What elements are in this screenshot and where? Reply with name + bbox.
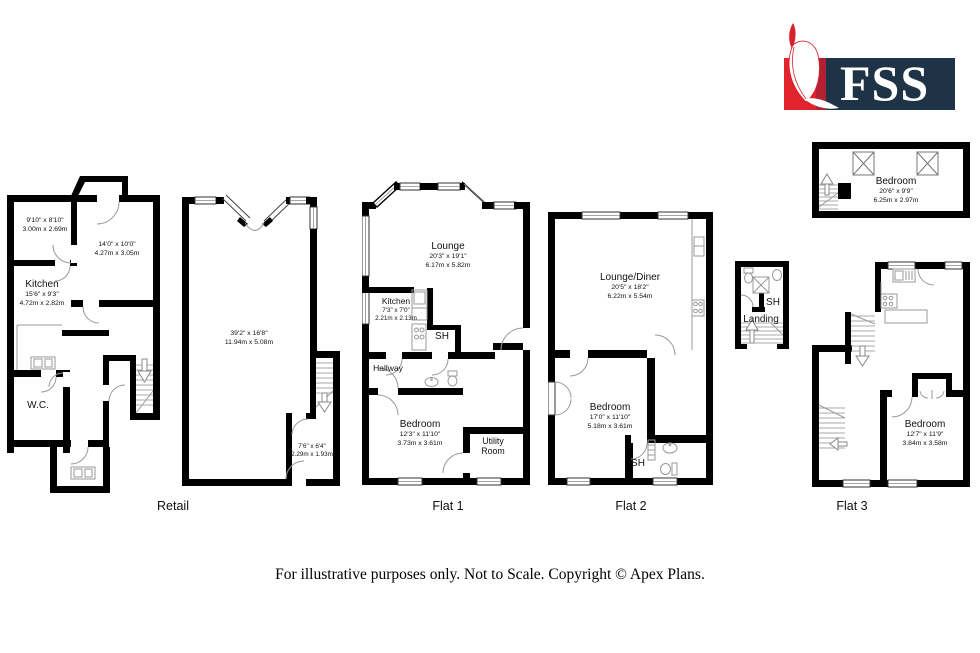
room-label-retail-main: 39'2" x 16'8" 11.94m x 5.08m: [225, 330, 273, 348]
chimney-block: [838, 183, 851, 199]
stairs-up-arrow-icon: [821, 174, 833, 195]
floorplan-ground-rear: 9'10" x 8'10" 3.00m x 2.69m 14'0" x 10'0…: [5, 175, 167, 500]
room-name: SH: [435, 330, 449, 343]
room-name: Lounge: [426, 240, 471, 253]
room-label-bedroom: Bedroom 12'3" x 11'10" 3.73m x 3.61m: [398, 418, 443, 449]
room-name: Lounge/Diner: [600, 271, 660, 284]
room-label-top-right: 14'0" x 10'0" 4.27m x 3.05m: [95, 241, 140, 259]
room-dims-m: 4.72m x 2.82m: [20, 300, 65, 309]
floorplan-page: { "logo": { "brand": "FSS" }, "footer": …: [0, 0, 980, 653]
logo-text: FSS: [840, 55, 929, 111]
toilet-icon: [661, 463, 678, 475]
wardrobe-rail-icon: [920, 390, 944, 399]
kitchen-units: [692, 219, 704, 350]
room-label-sh: SH: [631, 457, 645, 470]
stairs-down-arrow-icon: [856, 346, 869, 366]
shower-icon: [753, 277, 769, 293]
unit-label-flat2: Flat 2: [615, 499, 646, 513]
room-name: Kitchen: [375, 296, 417, 307]
room-label-attic-bedroom: Bedroom 20'6" x 9'9" 6.25m x 2.97m: [874, 175, 919, 206]
room-label-sh: SH: [435, 330, 449, 343]
stairs-icon: [851, 314, 875, 351]
disclaimer-text: For illustrative purposes only. Not to S…: [0, 566, 980, 584]
room-dims-ft: 17'0" x 11'10": [588, 414, 633, 423]
room-dims-m: 3.84m x 3.58m: [903, 440, 948, 449]
toilet-icon: [448, 371, 457, 386]
room-label-lounge: Lounge 20'3" x 19'1" 6.17m x 5.82m: [426, 240, 471, 271]
room-name: Bedroom: [903, 418, 948, 431]
sink-icon: [773, 270, 782, 281]
room-dims-m: 6.22m x 5.54m: [600, 293, 660, 302]
room-dims-m: 6.17m x 5.82m: [426, 262, 471, 271]
room-dims-m: 2.29m x 1.93m: [291, 451, 333, 459]
floorplan-landing-drawing: [731, 259, 793, 354]
floorplan-flat2: Lounge/Diner 20'5" x 18'2" 6.22m x 5.54m…: [548, 208, 713, 500]
room-dims-m: 3.73m x 3.61m: [398, 440, 443, 449]
room-label-sh: SH: [766, 296, 780, 309]
room-dims-m: 2.21m x 2.13m: [375, 315, 417, 323]
room-name: W.C.: [27, 399, 49, 412]
room-label-landing: Landing: [743, 313, 779, 326]
room-label-kitchen: Kitchen 15'6" x 9'3" 4.72m x 2.82m: [20, 278, 65, 309]
room-name: Utility Room: [470, 436, 516, 456]
room-label-bedroom: Bedroom 12'7" x 11'9" 3.84m x 3.58m: [903, 418, 948, 449]
room-dims-m: 5.18m x 3.61m: [588, 423, 633, 432]
room-dims-ft: 14'0" x 10'0": [95, 241, 140, 250]
room-name: SH: [631, 457, 645, 470]
door-arc: [741, 295, 753, 307]
room-label-utility: Utility Room: [470, 436, 516, 456]
room-label-kitchen: Kitchen 7'3" x 7'0" 2.21m x 2.13m: [375, 296, 417, 323]
sink-icon: [425, 378, 438, 387]
room-dims-ft: 39'2" x 16'8": [225, 330, 273, 339]
room-label-lounge-diner: Lounge/Diner 20'5" x 18'2" 6.22m x 5.54m: [600, 271, 660, 302]
room-name: Landing: [743, 313, 779, 326]
floorplan-retail: 39'2" x 16'8" 11.94m x 5.08m 7'6" x 6'4"…: [182, 193, 342, 493]
room-dims-ft: 7'3" x 7'0": [375, 307, 417, 315]
fss-logo-graphic: FSS: [778, 15, 963, 112]
room-name: Bedroom: [398, 418, 443, 431]
toilet-icon: [744, 268, 753, 283]
skylight-icon: [853, 152, 938, 175]
floorplan-flat3: Bedroom 12'7" x 11'9" 3.84m x 3.58m: [810, 258, 970, 493]
room-dims-m: 3.00m x 2.69m: [23, 226, 68, 235]
room-label-top-left: 9'10" x 8'10" 3.00m x 2.69m: [23, 217, 68, 235]
room-dims-ft: 12'3" x 11'10": [398, 431, 443, 440]
stairs-down-arrow-icon: [318, 393, 331, 412]
room-label-retail-store: 7'6" x 6'4" 2.29m x 1.93m: [291, 443, 333, 459]
sink-icon: [663, 443, 677, 453]
room-label-hallway: Hallway: [373, 363, 403, 374]
floorplan-attic: Bedroom 20'6" x 9'9" 6.25m x 2.97m: [812, 141, 970, 227]
floorplan-flat1: Lounge 20'3" x 19'1" 6.17m x 5.82m Kitch…: [362, 178, 532, 500]
room-name: Kitchen: [20, 278, 65, 291]
room-dims-ft: 15'6" x 9'3": [20, 291, 65, 300]
floorplan-flat3-drawing: [810, 258, 970, 493]
room-label-bedroom: Bedroom 17'0" x 11'10" 5.18m x 3.61m: [588, 401, 633, 432]
room-dims-m: 6.25m x 2.97m: [874, 197, 919, 206]
room-dims-ft: 20'3" x 19'1": [426, 253, 471, 262]
agency-logo: FSS: [778, 15, 963, 112]
room-name: Hallway: [373, 363, 403, 374]
room-dims-ft: 20'6" x 9'9": [874, 188, 919, 197]
room-dims-m: 4.27m x 3.05m: [95, 250, 140, 259]
stairs-down-arrow-icon: [138, 359, 151, 382]
room-dims-ft: 7'6" x 6'4": [291, 443, 333, 451]
room-name: Bedroom: [874, 175, 919, 188]
room-name: Bedroom: [588, 401, 633, 414]
unit-label-flat3: Flat 3: [836, 499, 867, 513]
unit-label-flat1: Flat 1: [432, 499, 463, 513]
floorplan-landing: SH Landing: [731, 259, 793, 354]
unit-label-retail: Retail: [157, 499, 189, 513]
room-dims-m: 11.94m x 5.08m: [225, 339, 273, 348]
room-dims-ft: 12'7" x 11'9": [903, 431, 948, 440]
room-name: SH: [766, 296, 780, 309]
room-label-wc: W.C.: [27, 399, 49, 412]
room-dims-ft: 20'5" x 18'2": [600, 284, 660, 293]
stairs-icon: [741, 323, 783, 343]
room-dims-ft: 9'10" x 8'10": [23, 217, 68, 226]
